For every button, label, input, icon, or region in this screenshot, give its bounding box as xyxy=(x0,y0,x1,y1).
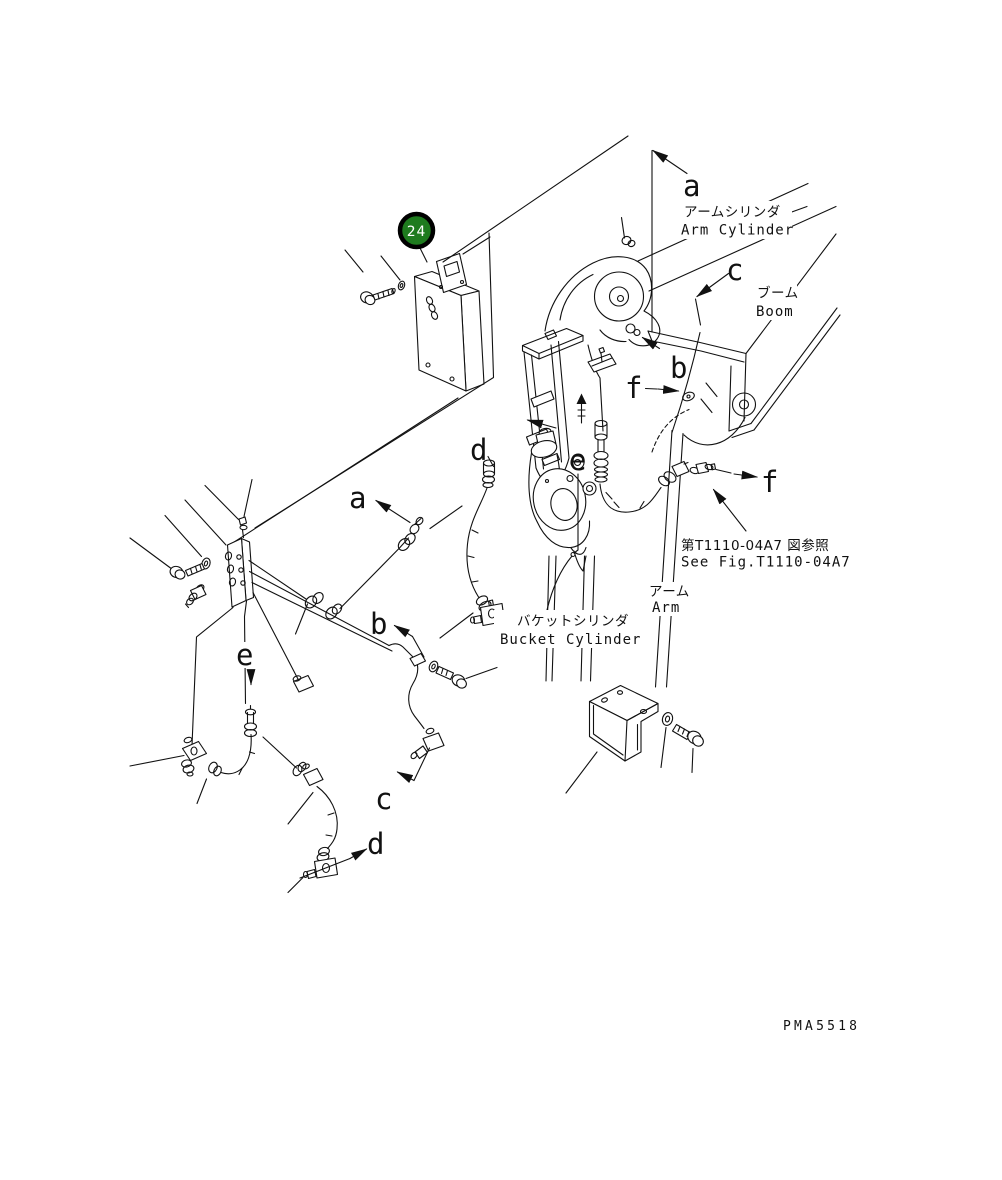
reference-ja: 第T1110-04A7 図参照 xyxy=(681,537,829,554)
arrow-a-top xyxy=(653,151,687,174)
grease-tube-a xyxy=(296,516,425,634)
label-bucket-cylinder-ja: バケットシリンダ xyxy=(517,614,629,630)
balloon-number: 24 xyxy=(407,224,426,240)
grease-hose-c xyxy=(263,737,350,893)
callout-c-bottom: c xyxy=(375,782,392,816)
callout-c-top: c xyxy=(726,253,743,287)
manifold-elbow-fitting xyxy=(185,583,206,607)
callout-d-top: d xyxy=(470,433,487,467)
part-balloon-24[interactable]: 24 xyxy=(400,214,433,262)
callout-b-left: b xyxy=(370,607,387,641)
grease-manifold xyxy=(130,480,392,746)
callout-f-right: f xyxy=(761,465,778,499)
protection-bracket xyxy=(566,686,705,794)
reference-en: See Fig.T1110-04A7 xyxy=(681,555,851,571)
label-bucket-cylinder-en: Bucket Cylinder xyxy=(500,632,641,648)
arrow-c-bottom xyxy=(398,772,415,781)
arrow-c-top xyxy=(697,274,729,297)
callout-f-left: f xyxy=(625,371,642,405)
mount-bolt xyxy=(621,218,636,248)
label-boom-en: Boom xyxy=(756,304,794,320)
grease-hose-d xyxy=(430,457,505,639)
clamp-bolt xyxy=(436,667,468,690)
label-arm-ja: アーム xyxy=(649,584,690,600)
arrow-see-fig xyxy=(714,490,747,532)
fitting-f xyxy=(689,463,715,475)
label-arm-cylinder-ja: アームシリンダ xyxy=(684,205,781,221)
arrow-d-bottom xyxy=(350,849,367,859)
grease-hose-f xyxy=(594,421,731,513)
arrow-f-left xyxy=(646,389,679,392)
label-arm-en: Arm xyxy=(652,600,680,616)
arrow-a-left xyxy=(376,501,410,523)
arrow-f-right xyxy=(734,474,757,477)
label-arm-cylinder-en: Arm Cylinder xyxy=(681,223,794,239)
bracket-washer xyxy=(661,711,674,726)
reference-note: 第T1110-04A7 図参照 See Fig.T1110-04A7 xyxy=(681,537,851,571)
plate-washer xyxy=(397,280,406,291)
manifold-bolt xyxy=(169,564,205,581)
drawing-code: PMA5518 xyxy=(783,1019,860,1034)
callout-letters: a c b f d e f a b e c d xyxy=(236,169,778,861)
callout-a-top: a xyxy=(683,169,700,203)
callout-e-mid: e xyxy=(569,443,586,477)
label-boom-ja: ブーム xyxy=(757,285,799,302)
part-labels: アームシリンダ Arm Cylinder ブーム Boom バケットシリンダ B… xyxy=(500,205,799,649)
grease-tube-b xyxy=(292,637,497,781)
bracket-bolt xyxy=(673,725,706,749)
callout-a-left: a xyxy=(349,481,366,515)
callout-arrows xyxy=(251,151,757,859)
arrow-b-left xyxy=(395,626,413,637)
callout-b-top: b xyxy=(670,351,687,385)
tube-b-elbow xyxy=(410,727,444,760)
grease-point-b xyxy=(626,324,640,336)
callout-e-left: e xyxy=(236,638,253,672)
frame-bolt xyxy=(577,394,587,424)
arm-cylinder-mount xyxy=(545,151,756,453)
parts-diagram-page: 24 xyxy=(0,0,1002,1180)
plate-bolt xyxy=(359,288,396,306)
callout-d-bottom: d xyxy=(367,827,384,861)
